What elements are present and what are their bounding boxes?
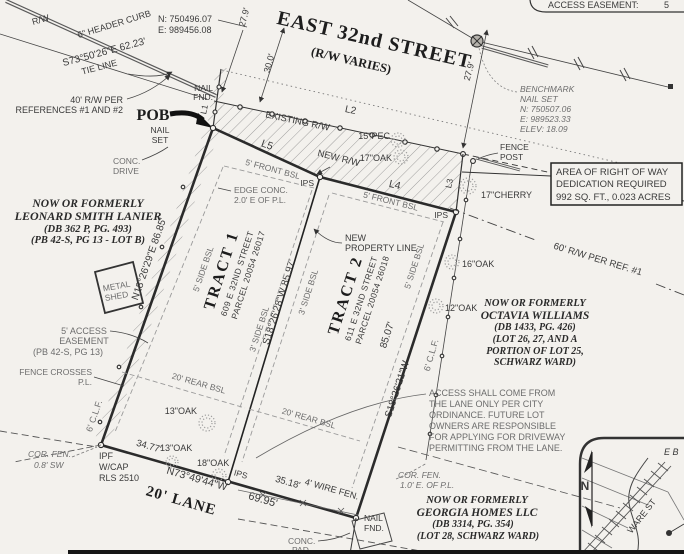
benchmark-line: ELEV: 18.09 <box>520 124 568 134</box>
ae-2: EASEMENT <box>59 336 109 346</box>
georgia-line: GEORGIA HOMES LLC <box>417 507 538 519</box>
lanier-line: (DB 362 P, PG. 493) <box>44 224 132 235</box>
cfe-1: COR. FEN. <box>398 470 441 480</box>
williams-line: (DB 1433, PG. 426) <box>494 322 575 333</box>
pob-nail-point <box>210 125 215 130</box>
edge-conc-2: 2.0' E OF P.L. <box>234 195 286 205</box>
ipf-2: W/CAP <box>99 462 129 472</box>
ips-ne-label: IPS <box>434 210 448 220</box>
fc-2: P.L. <box>78 377 92 387</box>
survey-plat-drawing: R/W 6" HEADER CURB S73°50'26"E 62.23' TI… <box>0 0 684 554</box>
rw40-line1: 40' R/W PER <box>70 95 123 105</box>
bottom-border-bar <box>68 550 684 554</box>
fence-post-point <box>471 159 476 164</box>
access-line: ORDINANCE. FUTURE LOT <box>429 410 545 420</box>
williams-line: OCTAVIA WILLIAMS <box>481 310 590 322</box>
lanier-line: (PB 42-S, PG 13 - LOT B) <box>31 235 145 246</box>
benchmark-line: BENCHMARK <box>520 84 575 94</box>
access-line: ACCESS SHALL COME FROM <box>429 388 555 398</box>
coord-e: E: 989456.08 <box>158 25 212 35</box>
tree-label-oak12: 12"OAK <box>445 303 477 313</box>
ipf-3: RLS 2510 <box>99 473 139 483</box>
access-line: OWNERS ARE RESPONSIBLE <box>429 421 556 431</box>
tree-label-pec15: 15"PEC <box>358 131 390 141</box>
nail-se-1: NAIL <box>364 513 383 523</box>
fp-1: FENCE <box>500 142 529 152</box>
rw40-line2: REFERENCES #1 AND #2 <box>15 105 123 115</box>
ips-front-label: IPS <box>300 178 314 188</box>
tree-label-oak17: 17"OAK <box>360 153 392 163</box>
access-line: THE LANE ONLY PER CITY <box>429 399 543 409</box>
fp-2: POST <box>500 152 523 162</box>
conc-drive-2: DRIVE <box>113 166 139 176</box>
tree-label-cherry17: 17"CHERRY <box>481 190 532 200</box>
pob-label: POB <box>137 107 170 124</box>
row-box-line: DEDICATION REQUIRED <box>556 179 667 190</box>
cfe-2: 1.0' E. OF P.L. <box>400 480 454 490</box>
williams-line: SCHWARZ WARD) <box>494 357 576 368</box>
benchmark-line: NAIL SET <box>520 94 558 104</box>
nail-se-2: FND. <box>364 523 384 533</box>
npl-text-1: NEW <box>345 233 367 243</box>
benchmark-line: N: 750507.06 <box>520 104 571 114</box>
cfsw-2: 0.8' SW <box>34 460 64 470</box>
williams-line: PORTION OF LOT 25, <box>486 346 584 357</box>
ipf-1: IPF <box>99 451 114 461</box>
benchmark-line: E: 989523.33 <box>520 114 571 124</box>
nail-set-1: NAIL <box>151 125 170 135</box>
ae-3: (PB 42-S, PG 13) <box>33 347 103 357</box>
tree-label-oak16: 16"OAK <box>462 259 494 269</box>
conc-drive-1: CONC. <box>113 156 140 166</box>
lanier-line: LEONARD SMITH LANIER <box>14 209 162 223</box>
tree-label-oak13a: 13"OAK <box>165 406 197 416</box>
row-box-line: AREA OF RIGHT OF WAY <box>556 167 669 178</box>
georgia-line: NOW OR FORMERLY <box>425 495 529 506</box>
fc-1: FENCE CROSSES <box>19 367 92 377</box>
georgia-line: (DB 3314, PG. 354) <box>432 519 513 530</box>
access-line: PERMITTING FROM THE LANE. <box>429 443 562 453</box>
north-label: N <box>581 479 590 493</box>
tree-label-oak18: 18"OAK <box>197 458 229 468</box>
utility-anchor-point <box>668 84 673 89</box>
cfsw-1: COR. FEN. <box>28 449 71 459</box>
access-line: FOR APPLYING FOR DRIVEWAY <box>429 432 565 442</box>
georgia-line: (LOT 28, SCHWARZ WARD) <box>417 531 539 542</box>
inset-e-street-label: E B <box>664 447 679 457</box>
coord-n: N: 750496.07 <box>158 14 212 24</box>
npl-text-2: PROPERTY LINE <box>345 243 417 253</box>
row-box-line: 992 SQ. FT., 0.023 ACRES <box>556 192 671 203</box>
edge-conc-1: EDGE CONC. <box>234 185 288 195</box>
williams-line: (LOT 26, 27, AND A <box>493 334 578 345</box>
nail-set-2: SET <box>152 135 169 145</box>
williams-line: NOW OR FORMERLY <box>483 298 587 309</box>
adjoiner-lanier: NOW OR FORMERLY LEONARD SMITH LANIER (DB… <box>14 198 162 246</box>
ips-front-point <box>317 174 322 179</box>
ae-1: 5' ACCESS <box>61 326 107 336</box>
top-access-easement-value: 5 <box>664 0 669 10</box>
nail-fnd-top-2: FND. <box>193 92 213 102</box>
tree-label-oak13b: 13"OAK <box>160 443 192 453</box>
top-access-easement-label: ACCESS EASEMENT: <box>548 0 639 10</box>
